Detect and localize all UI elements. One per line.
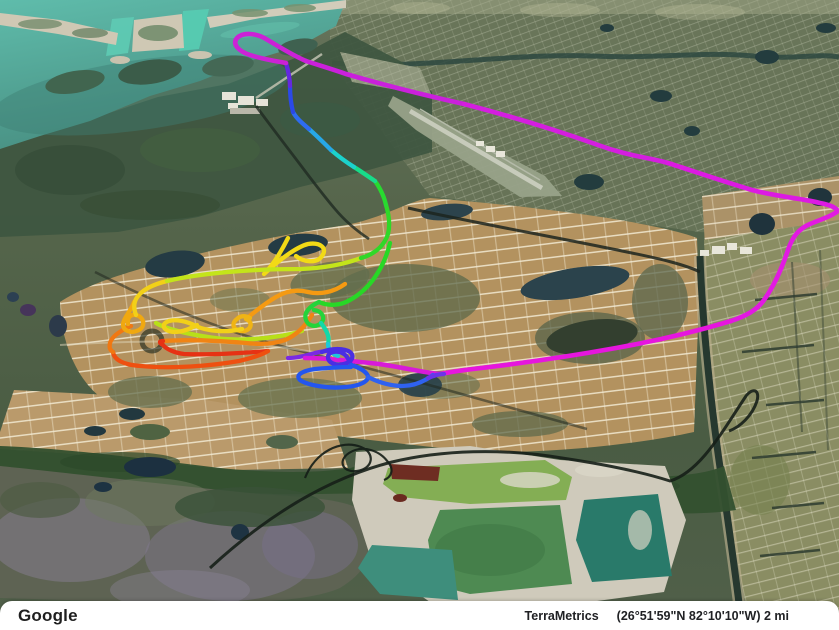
quarry-ponds	[352, 446, 686, 606]
imagery-credit: TerraMetrics	[525, 609, 599, 623]
camera-coordinates: (26°51'59"N 82°10'10"W)	[617, 609, 761, 623]
map-attribution-text: TerraMetrics (26°51'59"N 82°10'10"W) 2 m…	[525, 609, 789, 623]
google-earth-viewport[interactable]: Google TerraMetrics (26°51'59"N 82°10'10…	[0, 0, 839, 630]
attribution-bar: Google TerraMetrics (26°51'59"N 82°10'10…	[0, 601, 839, 630]
google-logo[interactable]: Google	[18, 606, 78, 626]
scale-text: 2 mi	[764, 609, 789, 623]
camera-coordinates-and-scale: (26°51'59"N 82°10'10"W) 2 mi	[617, 609, 789, 623]
satellite-map-canvas[interactable]	[0, 0, 839, 630]
